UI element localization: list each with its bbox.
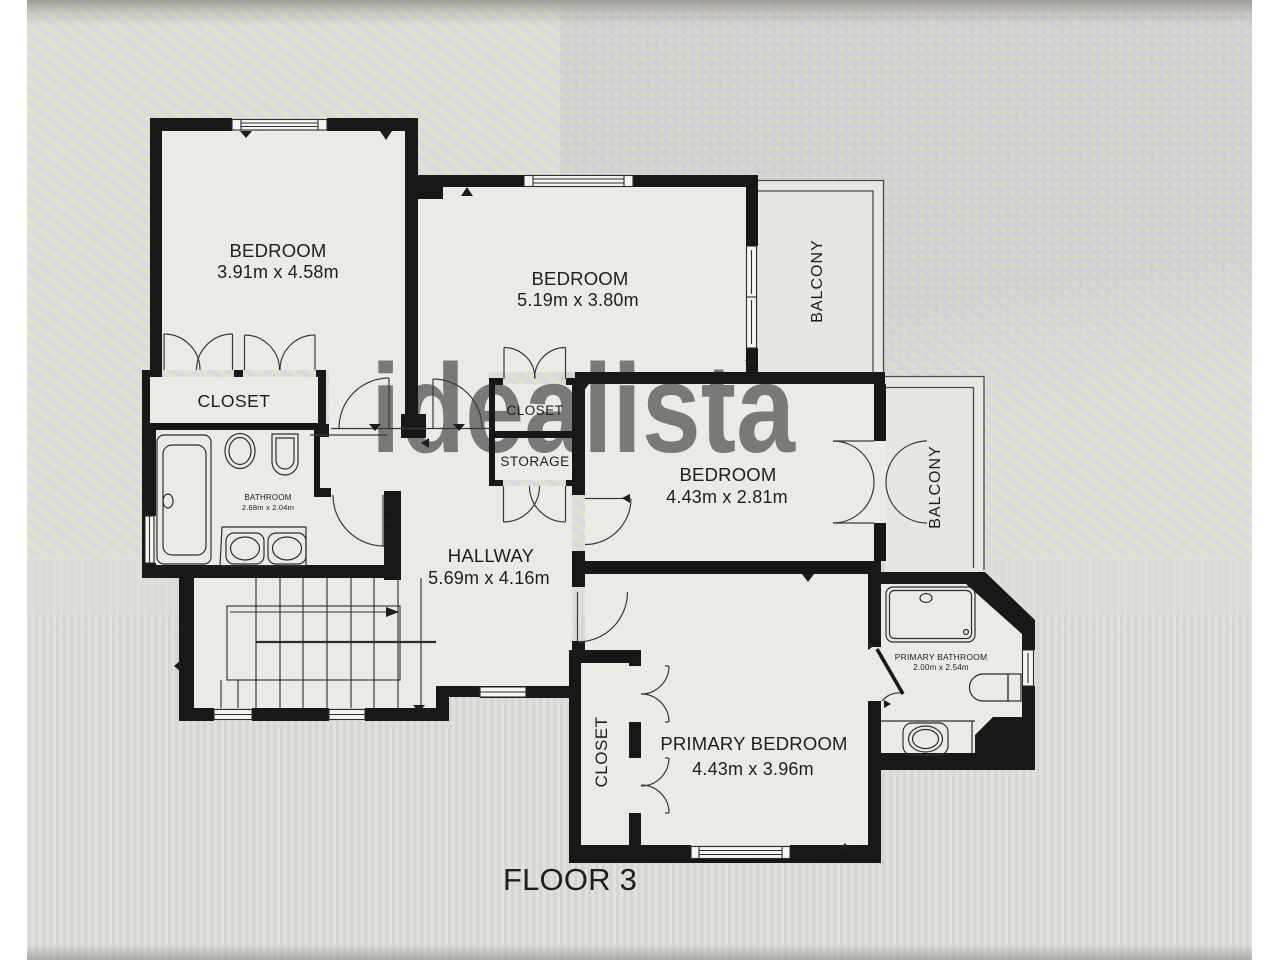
svg-text:PRIMARY BATHROOM: PRIMARY BATHROOM (895, 652, 987, 662)
svg-text:CLOSET: CLOSET (506, 403, 563, 418)
svg-text:5.19m x 3.80m: 5.19m x 3.80m (517, 290, 639, 310)
svg-text:5.69m x 4.16m: 5.69m x 4.16m (428, 568, 550, 588)
svg-text:BATHROOM: BATHROOM (244, 493, 291, 502)
svg-text:2.00m x 2.54m: 2.00m x 2.54m (913, 663, 969, 672)
svg-text:4.43m x 2.81m: 4.43m x 2.81m (666, 487, 788, 507)
svg-text:CLOSET: CLOSET (592, 716, 611, 787)
svg-text:BALCONY: BALCONY (927, 445, 944, 528)
svg-text:FLOOR 3: FLOOR 3 (503, 862, 637, 897)
svg-text:3.91m x 4.58m: 3.91m x 4.58m (217, 262, 339, 282)
svg-text:PRIMARY BEDROOM: PRIMARY BEDROOM (660, 733, 847, 754)
svg-text:BEDROOM: BEDROOM (680, 464, 777, 485)
svg-text:BEDROOM: BEDROOM (532, 268, 629, 289)
svg-text:4.43m x 3.96m: 4.43m x 3.96m (692, 759, 814, 779)
svg-text:BEDROOM: BEDROOM (230, 240, 327, 261)
svg-text:CLOSET: CLOSET (197, 391, 270, 411)
svg-text:BALCONY: BALCONY (809, 239, 826, 322)
svg-text:STORAGE: STORAGE (500, 454, 569, 469)
svg-text:HALLWAY: HALLWAY (448, 545, 534, 566)
svg-text:2.68m x 2.04m: 2.68m x 2.04m (242, 503, 294, 512)
